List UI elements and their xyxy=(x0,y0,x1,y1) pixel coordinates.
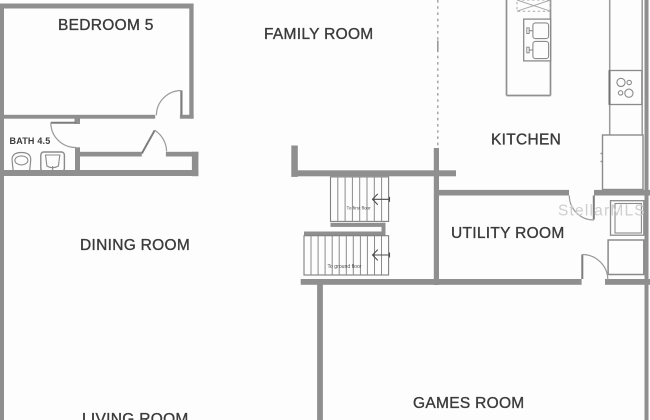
svg-text:DINING ROOM: DINING ROOM xyxy=(80,237,190,254)
svg-text:BEDROOM 5: BEDROOM 5 xyxy=(58,17,154,34)
svg-text:FAMILY ROOM: FAMILY ROOM xyxy=(264,26,374,43)
svg-text:LIVING ROOM: LIVING ROOM xyxy=(82,411,189,420)
svg-text:To ground floor: To ground floor xyxy=(328,264,362,270)
svg-text:BATH 4.5: BATH 4.5 xyxy=(10,136,51,146)
svg-text:KITCHEN: KITCHEN xyxy=(491,132,561,149)
svg-text:To first floor: To first floor xyxy=(347,206,372,211)
svg-text:StellarMLS: StellarMLS xyxy=(558,203,646,220)
svg-text:GAMES ROOM: GAMES ROOM xyxy=(413,395,525,412)
svg-text:UTILITY ROOM: UTILITY ROOM xyxy=(451,225,565,242)
